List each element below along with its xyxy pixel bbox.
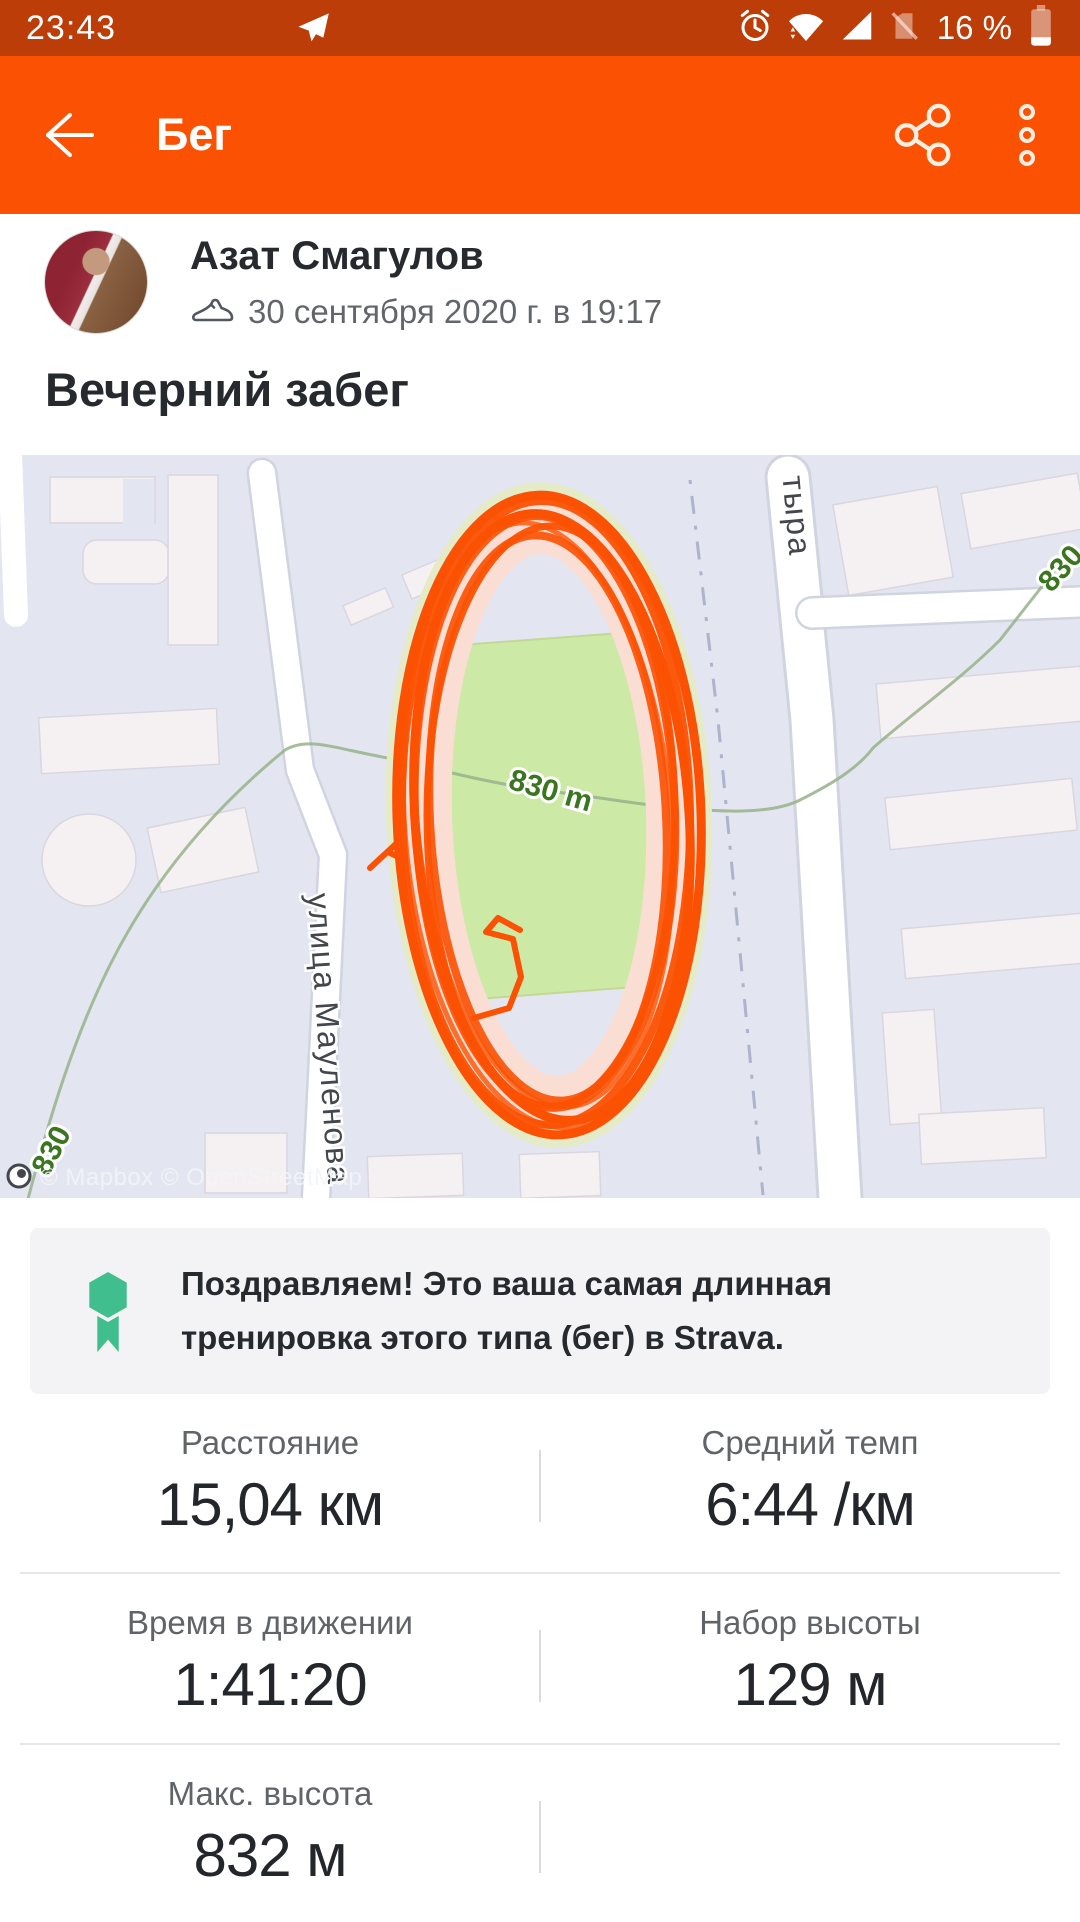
stat-moving-time: Время в движении 1:41:20 xyxy=(0,1604,540,1743)
app-bar: Бег xyxy=(0,56,1080,214)
no-sim-icon xyxy=(887,8,921,49)
battery-percent: 16 % xyxy=(937,9,1012,47)
map-canvas: улица Мауленова тыра 830 830 m 830 © Map… xyxy=(0,455,1080,1198)
wifi-icon xyxy=(785,7,827,50)
stats-divider xyxy=(539,1450,541,1522)
map-attribution[interactable]: © Mapbox © OpenStreetMap xyxy=(40,1164,362,1191)
back-button[interactable] xyxy=(40,107,102,163)
route-map[interactable]: улица Мауленова тыра 830 830 m 830 © Map… xyxy=(0,455,1080,1198)
stats-divider xyxy=(539,1801,541,1873)
stats-row-2: Время в движении 1:41:20 Набор высоты 12… xyxy=(0,1574,1080,1743)
athlete-avatar[interactable] xyxy=(44,230,148,334)
mapbox-logo-icon[interactable] xyxy=(8,1165,30,1187)
page-title: Бег xyxy=(156,109,232,161)
status-bar: 23:43 16 % xyxy=(0,0,1080,56)
status-time: 23:43 xyxy=(26,9,116,48)
stat-avg-pace: Средний темп 6:44 /км xyxy=(540,1424,1080,1572)
stats-divider xyxy=(539,1630,541,1702)
alarm-clock-icon xyxy=(737,8,773,49)
telegram-plane-icon xyxy=(296,11,330,45)
share-button[interactable] xyxy=(894,103,956,167)
achievement-message: Поздравляем! Это ваша самая длинная трен… xyxy=(181,1257,1020,1365)
achievement-banner: Поздравляем! Это ваша самая длинная трен… xyxy=(30,1228,1050,1394)
stats-row-1: Расстояние 15,04 км Средний темп 6:44 /к… xyxy=(0,1394,1080,1572)
activity-header: Азат Смагулов 30 сентября 2020 г. в 19:1… xyxy=(0,214,1080,334)
activity-title: Вечерний забег xyxy=(45,362,1080,417)
running-shoe-icon xyxy=(190,295,236,329)
cell-signal-icon xyxy=(839,8,875,49)
activity-datetime: 30 сентября 2020 г. в 19:17 xyxy=(248,293,662,331)
stat-max-elevation: Макс. высота 832 м xyxy=(0,1775,540,1922)
medal-icon xyxy=(83,1265,133,1357)
stat-empty-cell xyxy=(540,1775,1080,1922)
street-label-top: тыра xyxy=(775,474,818,558)
stat-elevation-gain: Набор высоты 129 м xyxy=(540,1604,1080,1743)
battery-low-icon xyxy=(1028,5,1054,52)
stats-row-3: Макс. высота 832 м xyxy=(0,1745,1080,1922)
stat-distance: Расстояние 15,04 км xyxy=(0,1424,540,1572)
stats-section: Расстояние 15,04 км Средний темп 6:44 /к… xyxy=(0,1394,1080,1922)
athlete-name[interactable]: Азат Смагулов xyxy=(190,234,662,279)
overflow-menu-button[interactable] xyxy=(1018,104,1036,166)
